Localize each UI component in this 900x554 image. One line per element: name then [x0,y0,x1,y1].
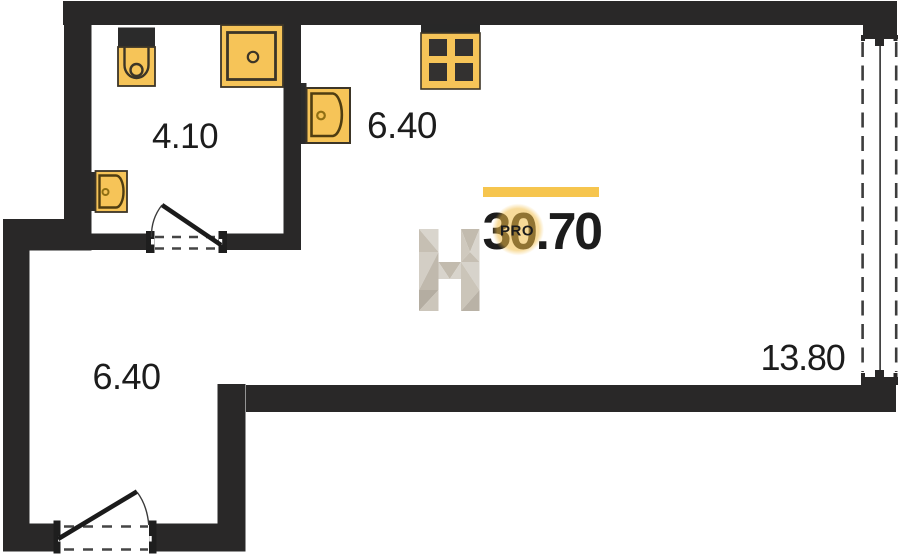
svg-text:PRO: PRO [500,223,534,240]
svg-text:6.40: 6.40 [92,356,160,397]
svg-text:6.40: 6.40 [367,105,437,146]
svg-text:13.80: 13.80 [760,337,844,378]
svg-text:4.10: 4.10 [152,117,218,156]
